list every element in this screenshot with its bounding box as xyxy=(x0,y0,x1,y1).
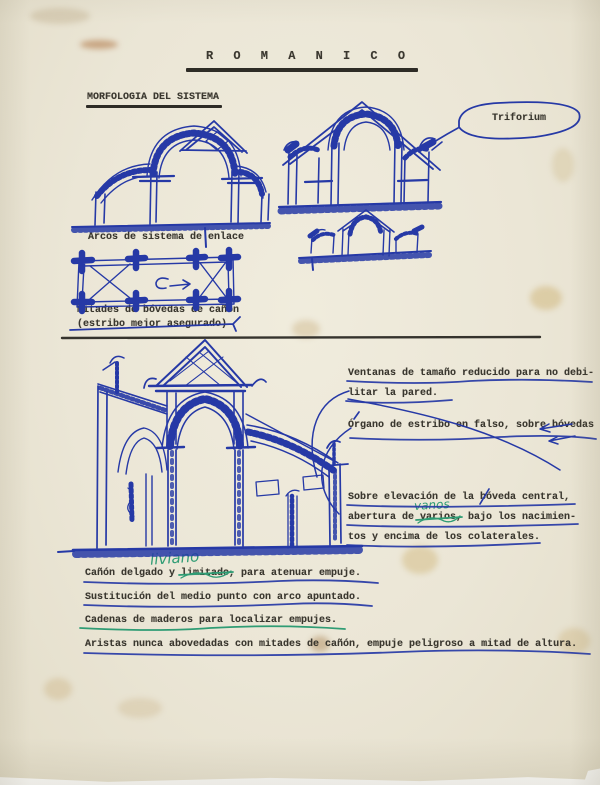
note-organo: Órgano de estribo en falso, sobre bóveda… xyxy=(348,420,594,432)
handwritten-liviano: liviano xyxy=(149,547,199,568)
canon-struck-word: limitado xyxy=(181,568,229,579)
note-sobre-line1: Sobre elevación de la bóveda central, xyxy=(348,492,570,504)
sobre-line2-post: bajo los nacimien- xyxy=(462,512,576,523)
heading-underline xyxy=(86,105,222,108)
title-underline xyxy=(186,68,418,72)
note-cadenas: Cadenas de maderos para localizar empuje… xyxy=(85,615,337,627)
sobre-line2-pre: abertura de xyxy=(348,512,420,523)
note-ventanas-line1: Ventanas de tamaño reducido para no debi… xyxy=(348,368,594,380)
note-ventanas-line2: litar la pared. xyxy=(348,388,438,400)
canon-pre: Cañón delgado y xyxy=(85,568,181,579)
caption-arcos: Arcos de sistema de enlace xyxy=(88,232,244,244)
caption-mitades-line1: Mitades de bóvedas de cañón xyxy=(77,305,239,317)
caption-mitades-line2: (estribo mejor asegurado) xyxy=(77,319,227,331)
note-canon: Cañón delgado y limitado, para atenuar e… xyxy=(85,568,361,580)
note-sobre-line2: abertura de varios, bajo los nacimien- xyxy=(348,512,576,524)
page-title: R O M A N I C O xyxy=(206,50,412,62)
sobre-line2-struck-word: varios, xyxy=(420,512,462,523)
handwritten-vanos: vanos xyxy=(414,497,450,513)
note-sobre-line3: tos y encima de los colaterales. xyxy=(348,532,540,544)
scanned-page: R O M A N I C O MORFOLOGIA DEL SISTEMA A… xyxy=(0,0,600,785)
section-heading: MORFOLOGIA DEL SISTEMA xyxy=(87,92,219,104)
triforium-label: Triforium xyxy=(492,113,546,125)
canon-post: , para atenuar empuje. xyxy=(229,568,361,579)
note-sustitucion: Sustitución del medio punto con arco apu… xyxy=(85,592,361,604)
note-aristas: Aristas nunca abovedadas con mitades de … xyxy=(85,639,577,651)
